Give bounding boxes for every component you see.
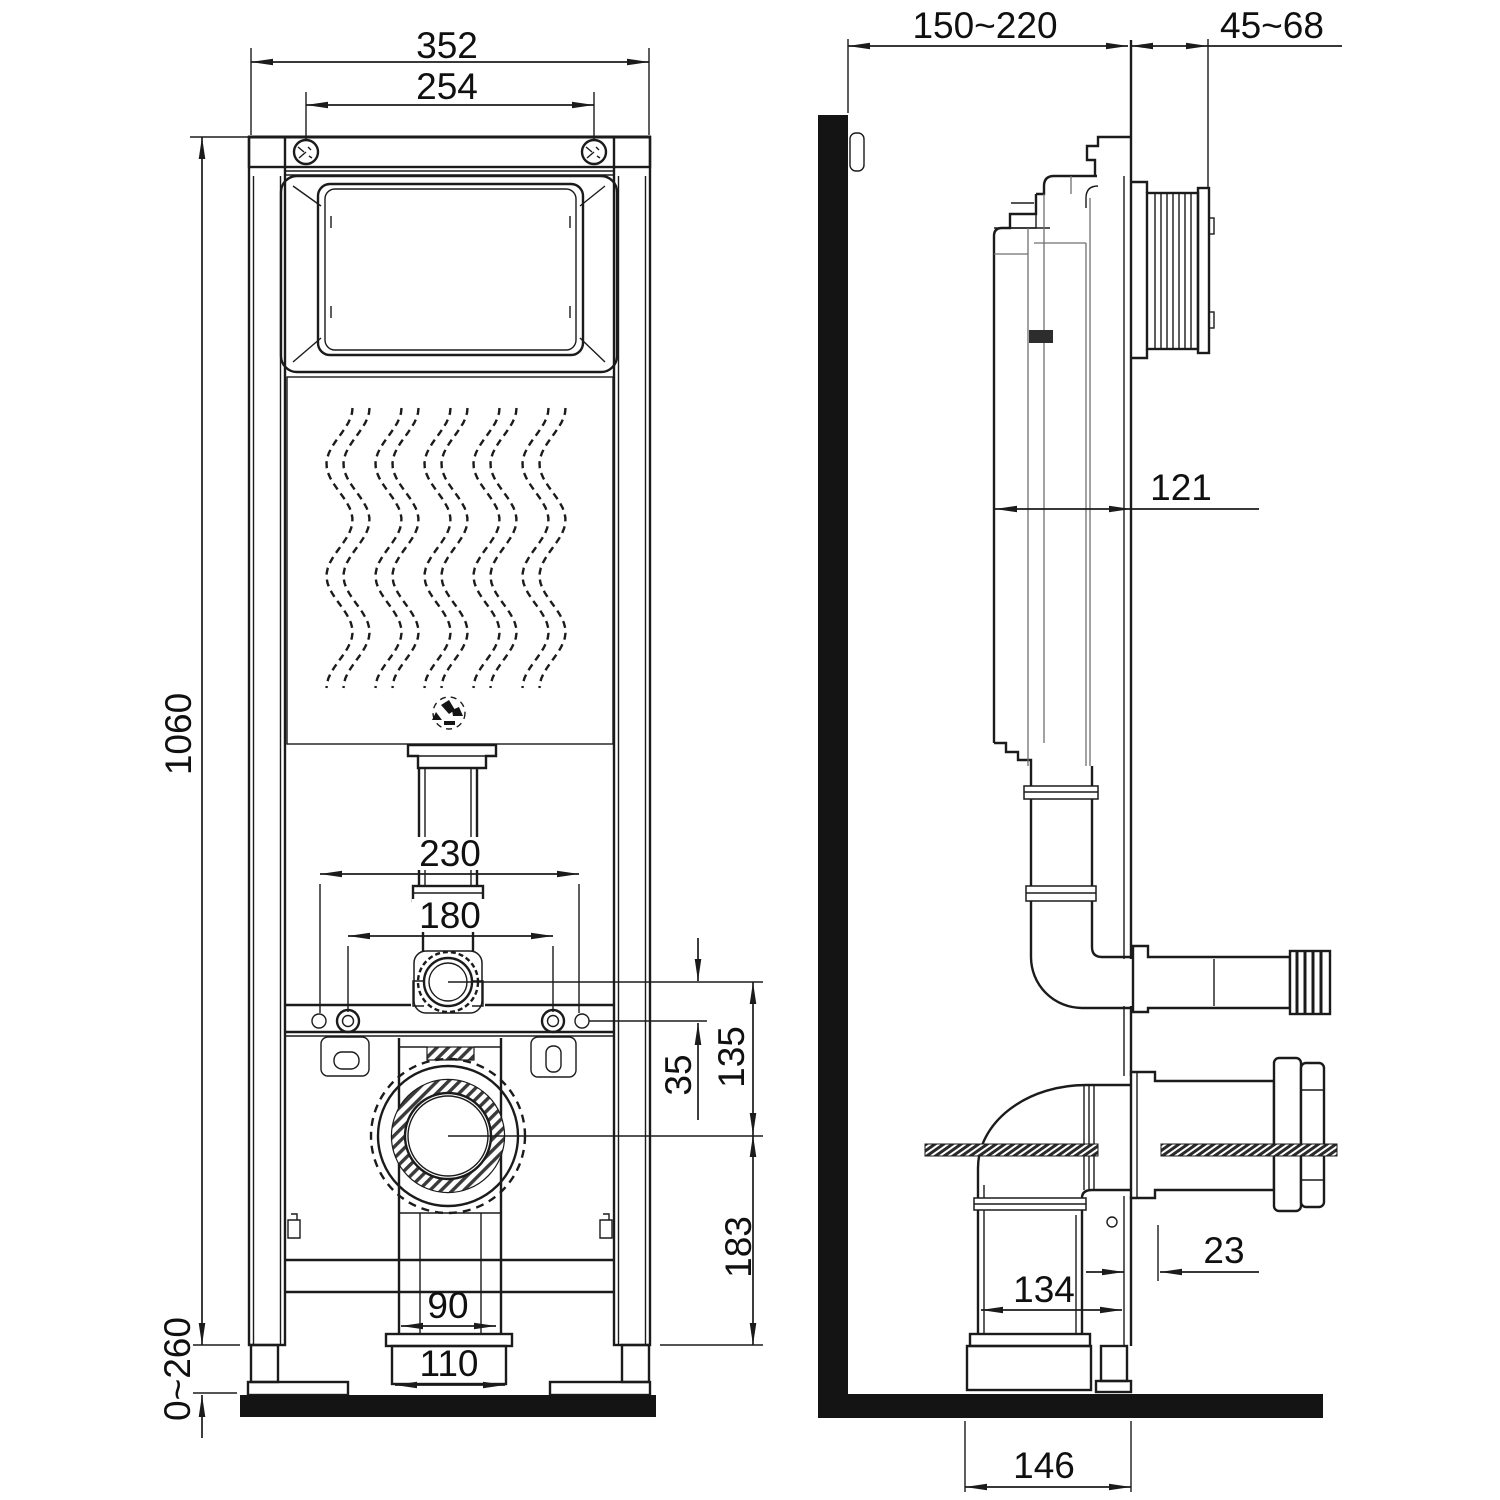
svg-text:45~68: 45~68 <box>1220 5 1324 46</box>
svg-text:254: 254 <box>416 66 478 107</box>
svg-text:183: 183 <box>718 1216 759 1278</box>
svg-text:134: 134 <box>1013 1269 1075 1310</box>
svg-text:90: 90 <box>427 1285 468 1326</box>
svg-text:150~220: 150~220 <box>912 5 1057 46</box>
svg-text:352: 352 <box>416 25 478 66</box>
svg-text:121: 121 <box>1150 467 1212 508</box>
svg-text:1060: 1060 <box>158 693 199 775</box>
svg-text:110: 110 <box>420 1343 479 1384</box>
svg-text:135: 135 <box>711 1026 752 1088</box>
svg-text:146: 146 <box>1013 1445 1075 1486</box>
svg-text:35: 35 <box>658 1054 699 1095</box>
svg-text:180: 180 <box>419 895 481 936</box>
svg-text:230: 230 <box>419 833 481 874</box>
svg-text:0~260: 0~260 <box>157 1317 198 1421</box>
svg-text:23: 23 <box>1203 1230 1244 1271</box>
